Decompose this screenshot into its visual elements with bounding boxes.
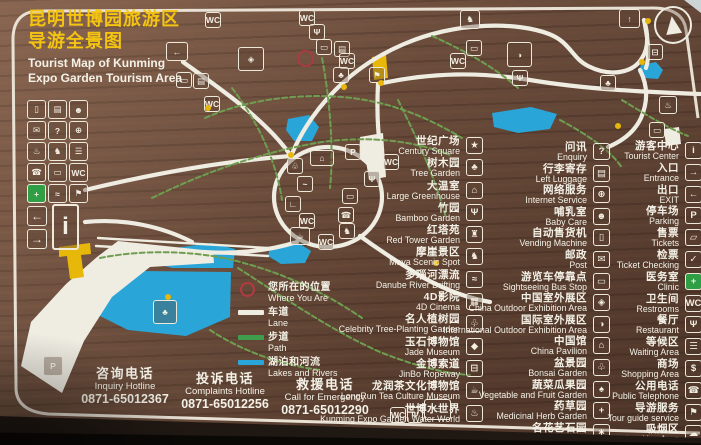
grid-internet-icon: ⊕ <box>69 121 88 140</box>
facilities-list: 游客中心 Tourist Center i 入口 Entrance → 出口 E… <box>522 141 701 445</box>
facility-icon: Ψ <box>685 316 701 333</box>
facility-icon: ← <box>685 186 701 203</box>
fac-clinic: 医务室 Clinic + <box>522 272 701 294</box>
grid-left-luggage-icon: ▤ <box>48 100 67 119</box>
grid-bus-station-icon: ▭ <box>48 163 67 182</box>
fac-parking: 停车场 Parking P <box>522 206 701 228</box>
fac-shopping-area: 商场 Shopping Area $ <box>522 359 701 381</box>
fac-tour-guide-service: 导游服务 Tour guide service ⚑ <box>522 403 701 425</box>
facility-icon: $ <box>685 360 701 377</box>
fac-entrance: 入口 Entrance → <box>522 163 701 185</box>
grid-scenic-spot-icon: ♞ <box>48 142 67 161</box>
facility-icon: i <box>685 142 701 159</box>
facility-icon: + <box>685 273 701 290</box>
grid-telephone-icon: ☎ <box>27 163 46 182</box>
fac-public-telephone: 公用电话 Public Telephone ☎ <box>522 381 701 403</box>
grid-drinking-water-icon: ♨ <box>27 142 46 161</box>
tourist-map-sign: WC←▭▤WC◈WCΨ▭▤WC♣⚑♞▭WC◑Ψ↑⊟♨▭PWCΨ⌂♧~∟WC▭☎☕… <box>0 0 701 445</box>
grid-vending-machine-icon: ▯ <box>27 100 46 119</box>
facility-icon: ☰ <box>685 338 701 355</box>
grid-first-aid-icon: + <box>27 184 46 203</box>
grid-exit-icon: ← <box>27 206 47 226</box>
grid-rest-area-icon: ☰ <box>69 142 88 161</box>
grid-enquiry-icon: ? <box>48 121 67 140</box>
fac-restrooms: 卫生间 Restrooms WC <box>522 294 701 316</box>
compass-north-icon <box>654 6 692 44</box>
emergency-hotline: 救援电话 Call for Emergency 0871-65012290 <box>258 377 392 417</box>
grid-post-icon: ✉ <box>27 121 46 140</box>
you-are-here-marker <box>297 50 314 67</box>
facility-icon: ▱ <box>685 229 701 246</box>
facility-icon: ✓ <box>685 251 701 268</box>
fac-exit: 出口 EXIT ← <box>522 185 701 207</box>
grid-information-icon: i <box>52 204 79 250</box>
facility-icon: WC <box>685 295 701 312</box>
facility-icon: ⚑ <box>685 404 701 421</box>
fac-tickets: 售票 Tickets ▱ <box>522 228 701 250</box>
facility-icon: → <box>685 164 701 181</box>
title-chinese-line1: 昆明世博园旅游区 <box>28 8 182 30</box>
facility-icon: ☎ <box>685 382 701 399</box>
fac-waiting-area: 等候区 Waiting Area ☰ <box>522 337 701 359</box>
fac-tourist-center: 游客中心 Tourist Center i <box>522 141 701 163</box>
sign-title: 昆明世博园旅游区 导游全景图 Tourist Map of Kunming Ex… <box>28 8 182 86</box>
title-english: Tourist Map of Kunming Expo Garden Touri… <box>28 56 182 86</box>
grid-tour-guide-icon: ⚑ <box>69 184 88 203</box>
facility-icon: P <box>685 207 701 224</box>
title-chinese-line2: 导游全景图 <box>28 30 182 52</box>
fac-ticket-checking: 检票 Ticket Checking ✓ <box>522 250 701 272</box>
north-needle <box>664 15 682 35</box>
fac-restaurant: 餐厅 Restaurant Ψ <box>522 315 701 337</box>
grid-baby-care-icon: ☻ <box>69 100 88 119</box>
grid-restroom-icon: WC <box>69 163 88 182</box>
grid-water-icon: ≈ <box>48 184 67 203</box>
grid-entrance-icon: → <box>27 229 47 249</box>
facility-icon-grid: ▯▤☻✉?⊕♨♞☰☎▭WC+≈⚑ <box>27 100 88 203</box>
